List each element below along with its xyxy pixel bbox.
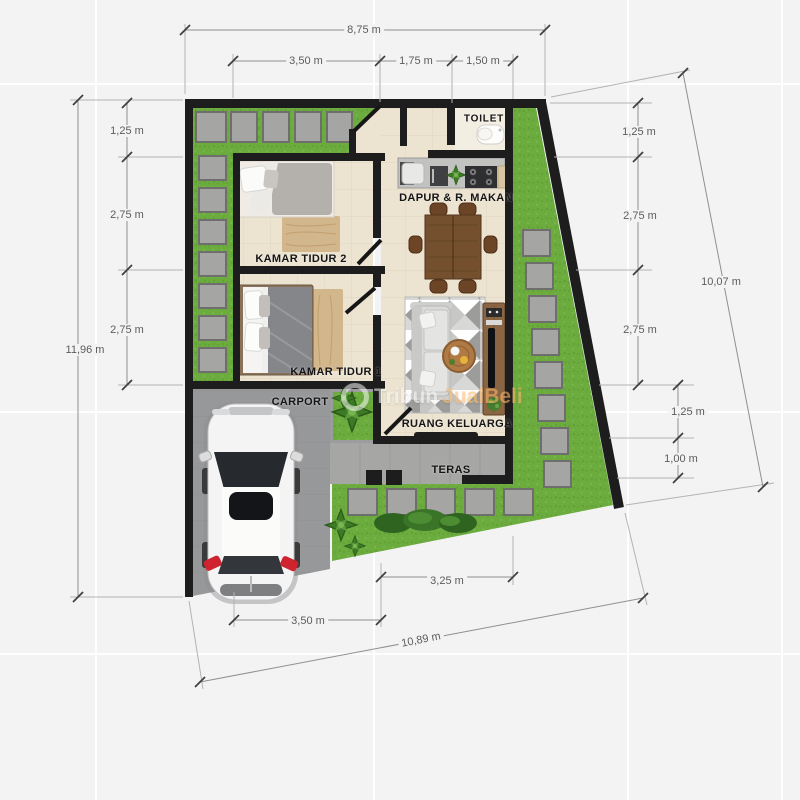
room-label-bedroom2: KAMAR TIDUR 2: [255, 253, 346, 265]
dim-left-seg-2: 2,75 m: [107, 209, 147, 221]
room-label-kitchen-dining: DAPUR & R. MAKAN: [399, 192, 513, 204]
dim-left-total: 11,96 m: [63, 344, 108, 356]
kitchen-counter: [398, 158, 512, 188]
dim-right-seg-3: 2,75 m: [620, 324, 660, 336]
dim-bottom-seg-2: 3,50 m: [288, 615, 328, 627]
dim-right-seg-1: 1,25 m: [619, 126, 659, 138]
dim-right-seg-5: 1,00 m: [661, 453, 701, 465]
dim-right-seg-2: 2,75 m: [620, 210, 660, 222]
watermark-text-2: JualBeli: [442, 385, 523, 409]
room-label-family-room: RUANG KELUARGA: [402, 418, 513, 430]
room-label-terrace: TERAS: [431, 464, 470, 476]
dim-top-seg-1: 3,50 m: [286, 55, 326, 67]
dim-left-seg-3: 2,75 m: [107, 324, 147, 336]
dim-top-seg-3: 1,50 m: [463, 55, 503, 67]
room-label-carport: CARPORT: [272, 396, 329, 408]
watermark-text-1: Tribun: [374, 385, 438, 409]
dim-top-total: 8,75 m: [344, 24, 384, 36]
watermark-logo-icon: [341, 383, 369, 411]
dim-bottom-seg-1: 3,25 m: [427, 575, 467, 587]
room-label-bedroom1: KAMAR TIDUR 1: [290, 366, 381, 378]
dim-top-seg-2: 1,75 m: [396, 55, 436, 67]
dim-right-seg-4: 1,25 m: [668, 406, 708, 418]
dim-left-seg-1: 1,25 m: [107, 125, 147, 137]
car-top-view: [198, 402, 304, 604]
dim-right-total: 10,07 m: [698, 276, 744, 288]
floor-plan-page: TOILET DAPUR & R. MAKAN KAMAR TIDUR 2 KA…: [0, 0, 800, 800]
room-label-toilet: TOILET: [464, 114, 504, 125]
bedroom-1-furniture: [235, 285, 343, 375]
watermark: TribunJualBeli: [341, 383, 523, 411]
